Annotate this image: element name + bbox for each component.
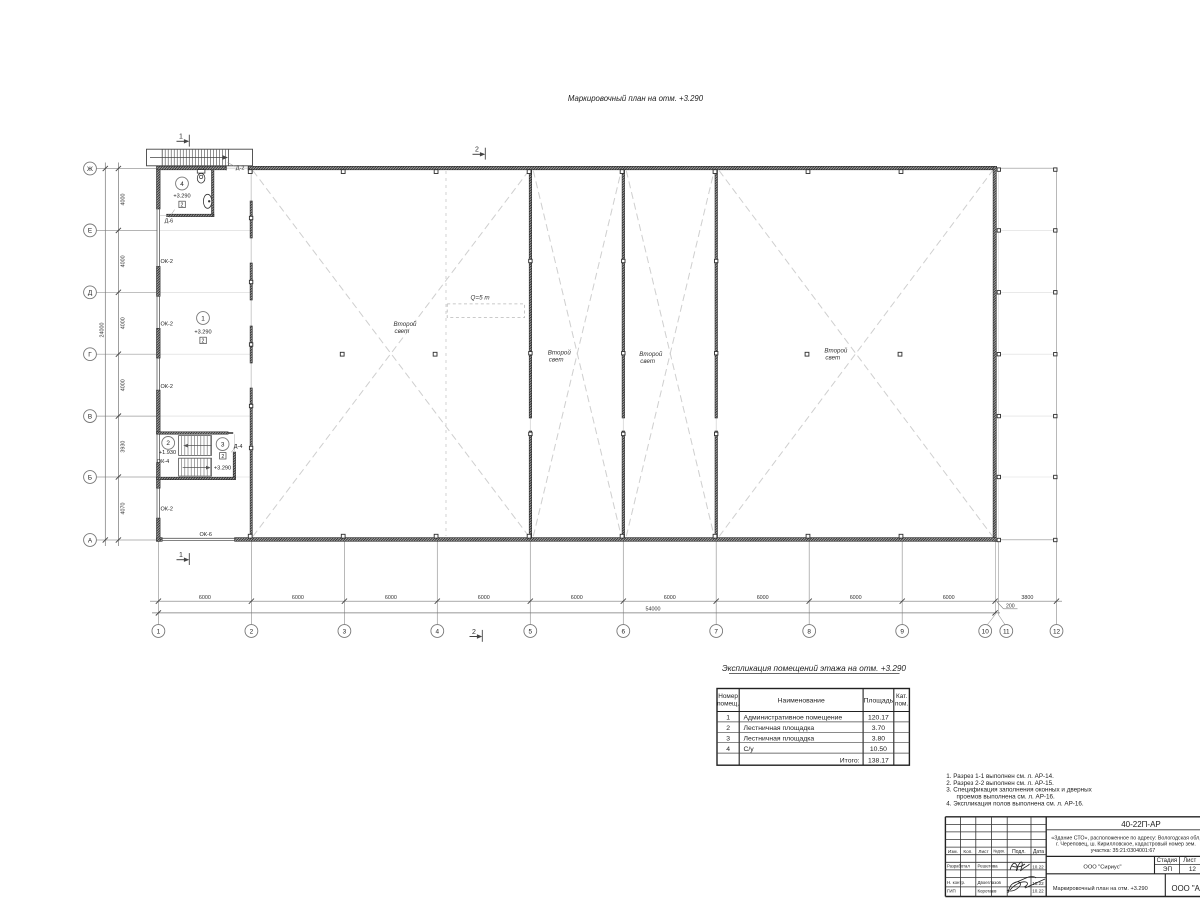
svg-text:Экспликация помещений этажа на: Экспликация помещений этажа на отм. +3.2… — [722, 664, 906, 673]
svg-text:С/у: С/у — [744, 746, 755, 753]
svg-text:1: 1 — [726, 715, 730, 722]
svg-text:138.17: 138.17 — [868, 757, 889, 764]
svg-text:6000: 6000 — [571, 595, 583, 601]
svg-text:Решетова: Решетова — [978, 864, 999, 869]
svg-text:Кат.: Кат. — [896, 693, 907, 700]
svg-text:4: 4 — [436, 628, 440, 635]
svg-text:Наименование: Наименование — [778, 698, 825, 705]
svg-text:Второй: Второй — [639, 351, 663, 358]
svg-text:24000: 24000 — [99, 323, 105, 338]
svg-text:10.50: 10.50 — [870, 746, 887, 753]
svg-text:4. Экспликация полов выполнена: 4. Экспликация полов выполнена см. л. АР… — [946, 800, 1084, 807]
svg-text:ОК-6: ОК-6 — [200, 532, 212, 538]
svg-text:Второй: Второй — [824, 348, 848, 355]
svg-text:Лестничная площадка: Лестничная площадка — [744, 725, 815, 732]
svg-text:3.80: 3.80 — [872, 735, 885, 742]
svg-text:12: 12 — [1053, 628, 1061, 635]
svg-text:Д-6: Д-6 — [165, 219, 174, 225]
svg-text:ОК-2: ОК-2 — [161, 321, 173, 327]
svg-text:Е: Е — [88, 228, 92, 235]
svg-text:2: 2 — [166, 440, 170, 447]
svg-text:ОК-2: ОК-2 — [161, 384, 173, 390]
svg-text:7: 7 — [714, 628, 718, 635]
svg-text:А: А — [88, 537, 93, 544]
svg-text:Г: Г — [88, 352, 92, 359]
svg-text:Второй: Второй — [394, 321, 418, 328]
svg-text:2: 2 — [181, 202, 184, 208]
svg-text:6000: 6000 — [385, 595, 397, 601]
svg-text:2: 2 — [472, 629, 476, 636]
svg-text:3: 3 — [343, 628, 347, 635]
svg-text:1: 1 — [179, 134, 183, 141]
svg-text:4070: 4070 — [121, 503, 127, 515]
svg-text:ОК-2: ОК-2 — [161, 507, 173, 513]
svg-text:Коротаев: Коротаев — [978, 888, 998, 893]
svg-text:4000: 4000 — [121, 317, 127, 329]
svg-text:ОК-4: ОК-4 — [157, 459, 169, 465]
svg-text:54000: 54000 — [646, 607, 661, 613]
svg-text:200: 200 — [1006, 603, 1015, 609]
svg-text:4000: 4000 — [121, 255, 127, 267]
svg-text:6000: 6000 — [199, 595, 211, 601]
svg-text:Маркировочный план на отм. +3.: Маркировочный план на отм. +3.290 — [1053, 885, 1148, 892]
svg-text:Н. контр.: Н. контр. — [947, 880, 965, 885]
svg-text:2: 2 — [250, 628, 254, 635]
svg-text:6000: 6000 — [292, 595, 304, 601]
svg-text:участка: 35:21:0304001:67: участка: 35:21:0304001:67 — [1091, 848, 1156, 854]
svg-text:1: 1 — [157, 628, 161, 635]
svg-text:4: 4 — [726, 746, 730, 753]
svg-text:свет: свет — [549, 357, 564, 364]
svg-text:Маркировочный план на отм. +3.: Маркировочный план на отм. +3.290 — [568, 94, 704, 103]
svg-text:ОК-2: ОК-2 — [161, 259, 173, 265]
svg-text:Ж: Ж — [87, 166, 93, 173]
svg-text:40-22П-АР: 40-22П-АР — [1121, 820, 1161, 829]
svg-text:свет: свет — [640, 358, 655, 365]
svg-text:10.22: 10.22 — [1032, 889, 1044, 894]
svg-text:Б: Б — [88, 474, 92, 481]
svg-text:10.22: 10.22 — [1032, 881, 1044, 886]
svg-text:ЭП: ЭП — [1163, 866, 1173, 873]
svg-text:5: 5 — [529, 628, 533, 635]
svg-text:2: 2 — [221, 454, 224, 460]
svg-text:Лист: Лист — [1183, 858, 1196, 864]
svg-text:120.17: 120.17 — [868, 715, 889, 722]
svg-text:2: 2 — [475, 147, 479, 154]
svg-text:проемов выполнена см. л. АР-16: проемов выполнена см. л. АР-16. — [957, 793, 1056, 800]
svg-text:ООО "Ал: ООО "Ал — [1172, 884, 1200, 893]
svg-text:Дата: Дата — [1033, 849, 1044, 855]
svg-text:9: 9 — [900, 628, 904, 635]
svg-text:6000: 6000 — [757, 595, 769, 601]
svg-text:6000: 6000 — [943, 595, 955, 601]
svg-text:4000: 4000 — [121, 379, 127, 391]
svg-text:1: 1 — [201, 315, 205, 322]
svg-text:6000: 6000 — [664, 595, 676, 601]
svg-text:Подл.: Подл. — [1012, 849, 1026, 855]
svg-text:12: 12 — [1189, 866, 1197, 873]
svg-text:Двоеглазов: Двоеглазов — [978, 880, 1002, 885]
svg-text:свет: свет — [825, 355, 840, 362]
svg-text:1: 1 — [179, 552, 183, 559]
svg-text:+1.930: +1.930 — [159, 450, 176, 456]
svg-text:Изм.: Изм. — [948, 849, 958, 854]
svg-text:Итого:: Итого: — [840, 757, 860, 764]
svg-text:Площадь: Площадь — [864, 698, 894, 705]
svg-text:8: 8 — [807, 628, 811, 635]
svg-text:+3.290: +3.290 — [173, 193, 190, 199]
svg-text:Q=5 т: Q=5 т — [471, 294, 490, 301]
svg-text:Коп.: Коп. — [963, 849, 972, 854]
svg-text:Д-4: Д-4 — [234, 444, 243, 450]
svg-text:Стадия: Стадия — [1157, 858, 1177, 864]
svg-text:3: 3 — [221, 441, 225, 448]
svg-text:Административное помещение: Административное помещение — [744, 715, 843, 722]
svg-text:В: В — [88, 413, 92, 420]
svg-text:+3.290: +3.290 — [214, 465, 231, 471]
svg-text:6000: 6000 — [850, 595, 862, 601]
svg-text:Второй: Второй — [548, 350, 572, 357]
svg-text:10.22: 10.22 — [1032, 864, 1044, 869]
svg-text:11: 11 — [1003, 628, 1010, 635]
svg-text:Д-2: Д-2 — [236, 165, 245, 171]
svg-text:+3.290: +3.290 — [194, 329, 211, 335]
svg-text:ООО "Сириус": ООО "Сириус" — [1083, 865, 1121, 871]
svg-text:Разработал: Разработал — [947, 864, 970, 869]
svg-text:помещ.: помещ. — [717, 701, 739, 708]
svg-text:4000: 4000 — [121, 194, 127, 206]
svg-text:пом.: пом. — [895, 701, 908, 708]
svg-text:г. Череповец, ш. Кирилловское,: г. Череповец, ш. Кирилловское, кадастров… — [1056, 841, 1196, 848]
svg-text:3.70: 3.70 — [872, 725, 885, 732]
svg-text:Номер: Номер — [718, 693, 738, 700]
svg-text:ГИП: ГИП — [947, 888, 956, 893]
svg-text:6000: 6000 — [478, 595, 490, 601]
svg-text:3800: 3800 — [1021, 595, 1033, 601]
svg-text:10: 10 — [982, 628, 990, 635]
svg-text:№док.: №док. — [993, 849, 1005, 854]
svg-text:Д: Д — [88, 290, 93, 297]
svg-text:свет: свет — [395, 328, 410, 335]
svg-text:2: 2 — [726, 725, 730, 732]
svg-text:«Здание СТО», расположенное по: «Здание СТО», расположенное по адресу: В… — [1051, 835, 1200, 841]
svg-text:Лестничная площадка: Лестничная площадка — [744, 735, 815, 742]
svg-text:2: 2 — [202, 338, 205, 344]
svg-text:Лист: Лист — [978, 849, 989, 854]
svg-text:4: 4 — [180, 181, 184, 188]
svg-text:3930: 3930 — [121, 441, 127, 453]
svg-text:3: 3 — [726, 735, 730, 742]
svg-text:6: 6 — [622, 628, 626, 635]
